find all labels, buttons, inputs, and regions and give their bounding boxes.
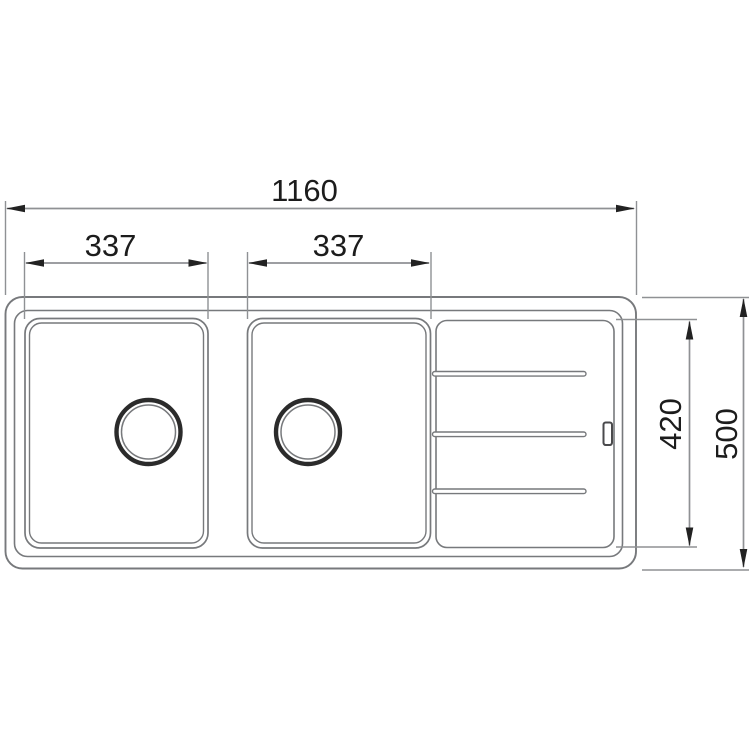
sink-drawing: 1160 337 337 420 500	[0, 0, 750, 750]
technical-drawing-canvas: 1160 337 337 420 500	[0, 0, 750, 750]
dim-label-overall-width: 1160	[271, 173, 338, 208]
drainer-groove-bottom	[433, 489, 587, 494]
dim-label-overall-depth: 500	[709, 408, 744, 460]
drainer-groove-middle	[433, 432, 587, 437]
left-bowl-drain-inner-circle	[122, 405, 176, 459]
dim-label-right-bowl-width: 337	[313, 228, 365, 263]
drainer-groove-top	[433, 372, 587, 377]
left-bowl-drain-ring	[117, 400, 181, 464]
overflow-slot	[604, 423, 613, 446]
right-bowl-drain-inner-circle	[281, 405, 335, 459]
right-bowl-drain-ring	[276, 400, 340, 464]
dim-label-inner-depth: 420	[653, 398, 688, 450]
dim-label-left-bowl-width: 337	[85, 228, 137, 263]
